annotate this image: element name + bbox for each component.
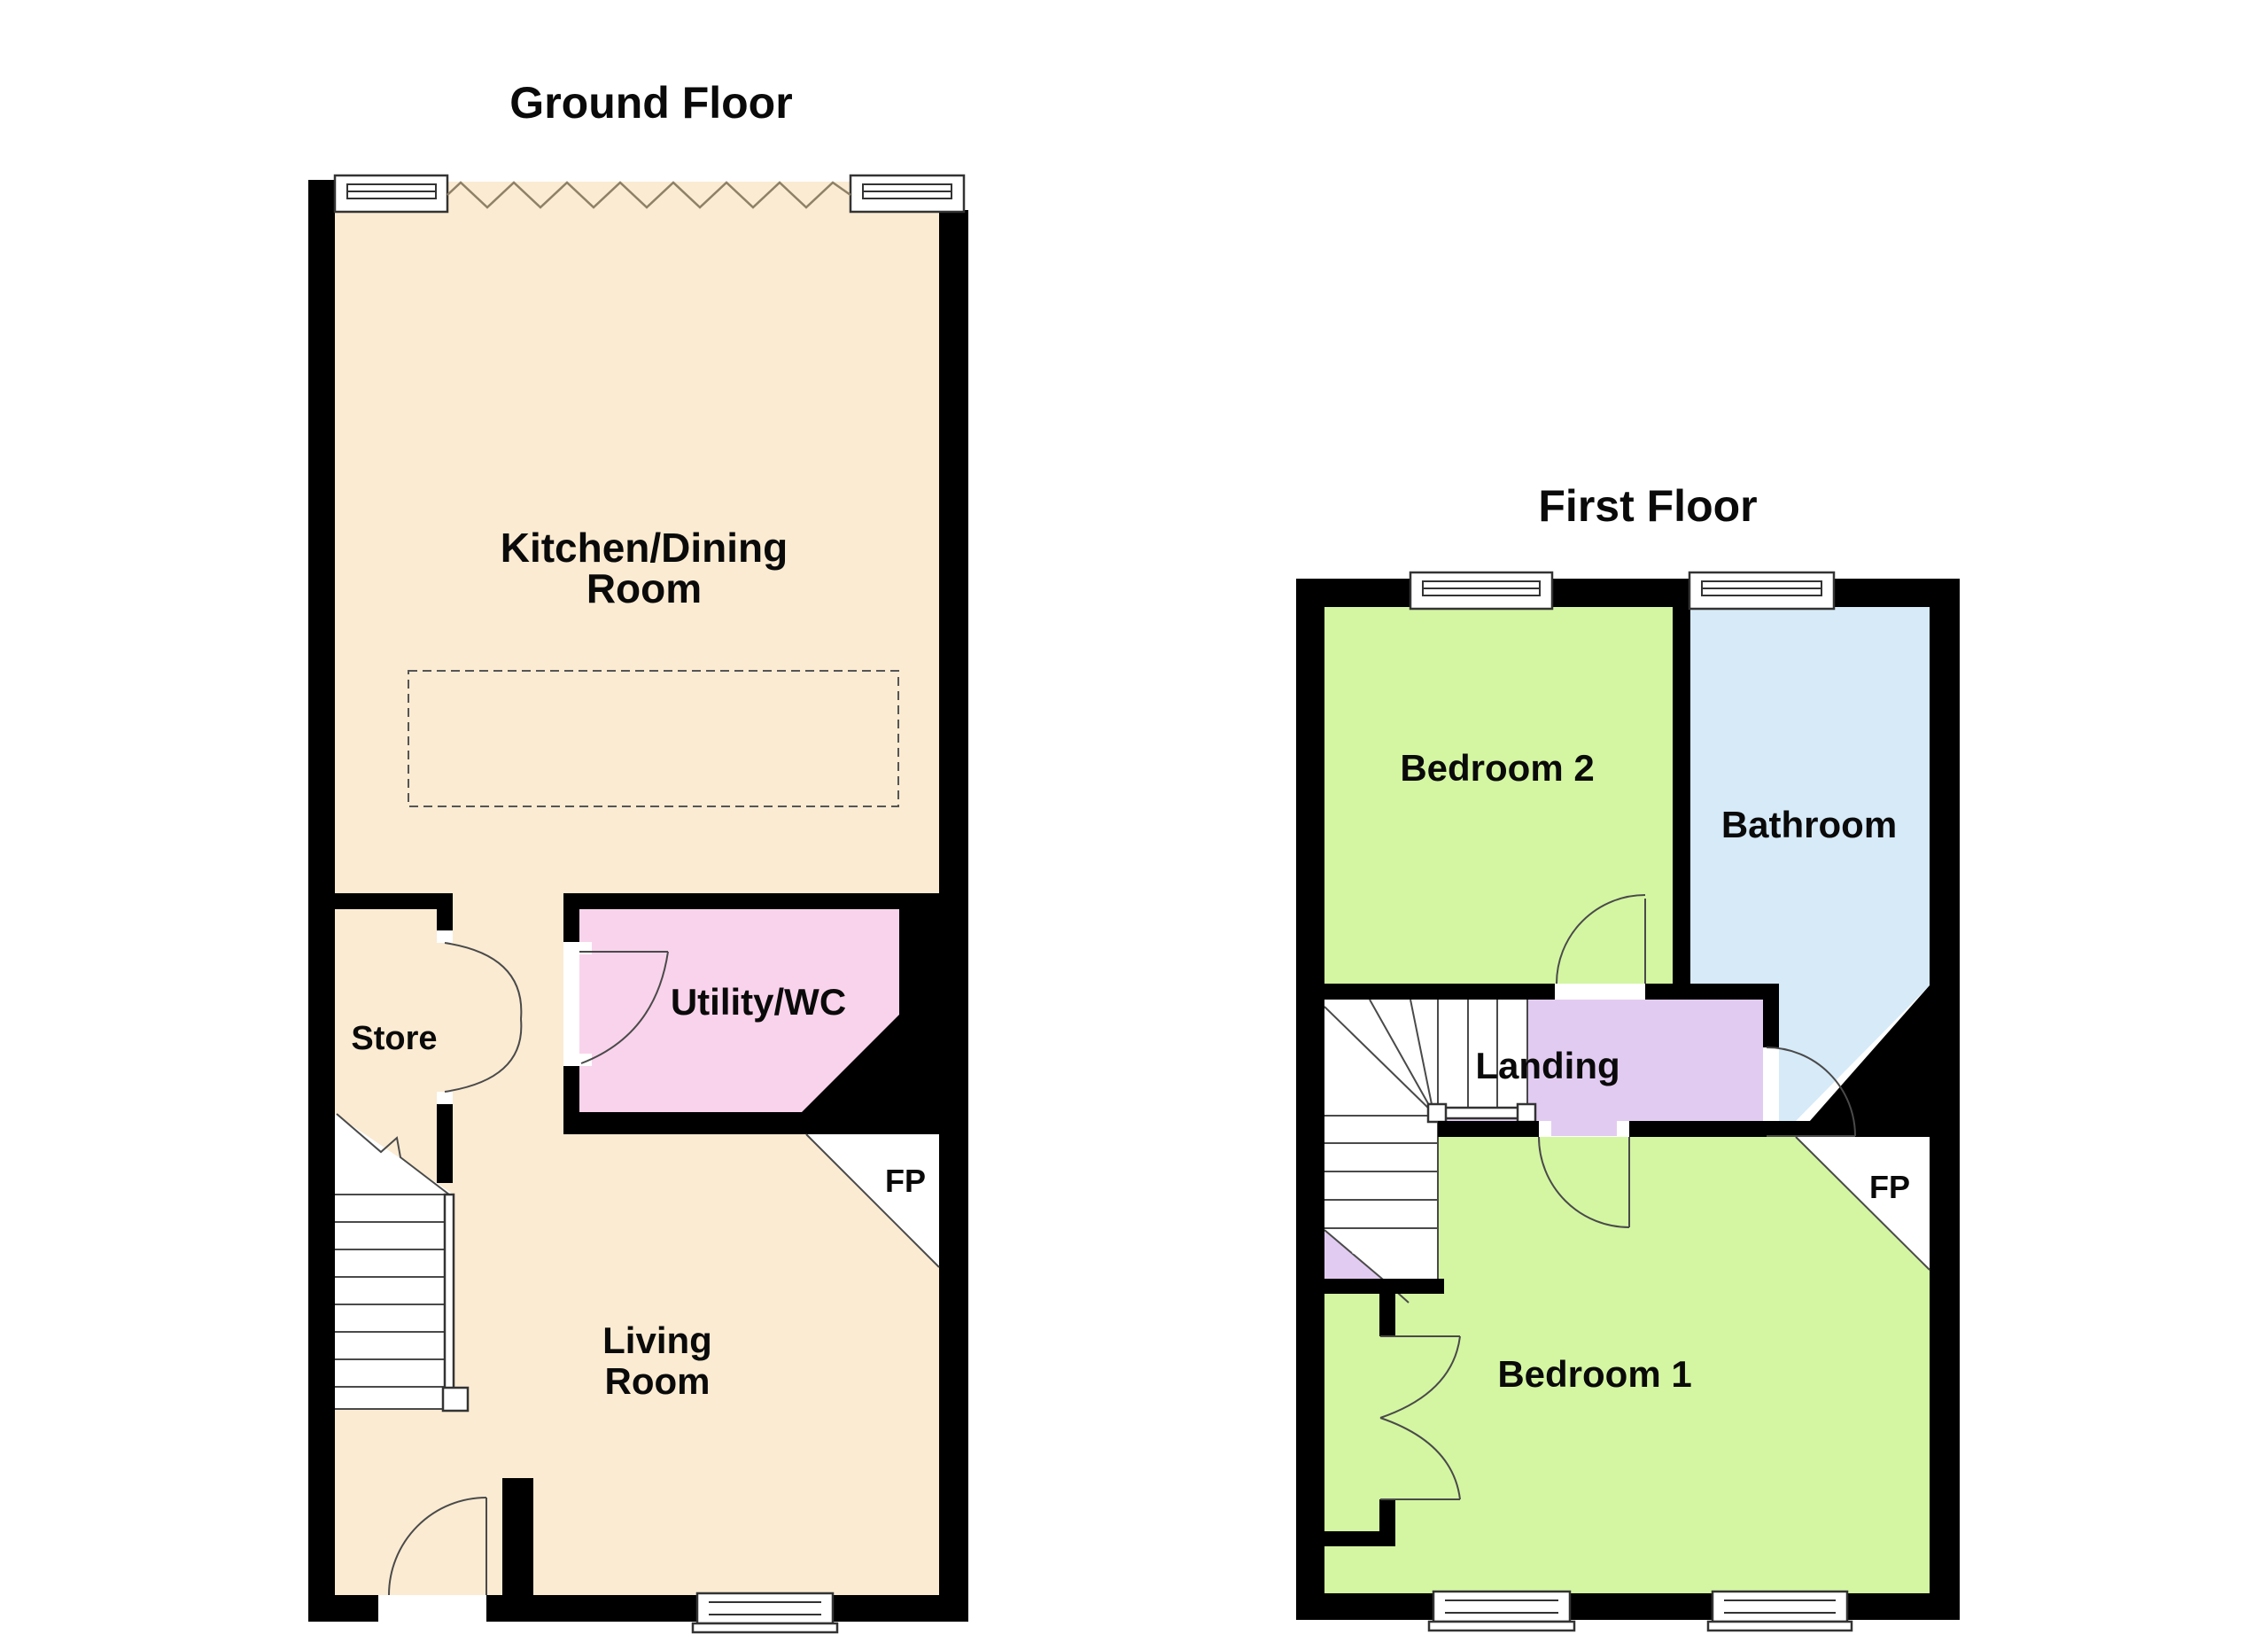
stair-newel xyxy=(1518,1104,1535,1122)
window xyxy=(1689,572,1834,609)
window xyxy=(697,1593,833,1623)
stair-handrail xyxy=(1438,1108,1526,1118)
stair-newel xyxy=(1428,1104,1446,1122)
window xyxy=(1410,572,1552,609)
stair-stringer xyxy=(445,1195,454,1409)
ground-wall-right xyxy=(939,210,968,1622)
first-wall-left xyxy=(1296,579,1324,1620)
stair-newel xyxy=(443,1388,468,1411)
window xyxy=(1713,1592,1847,1622)
kitchen-label-line2: Room xyxy=(586,565,702,611)
ground-fp-label: FP xyxy=(885,1163,926,1199)
first-floor-title: First Floor xyxy=(1538,481,1757,531)
window xyxy=(1433,1592,1570,1622)
kitchen-label-line1: Kitchen/Dining xyxy=(501,525,788,571)
living-label-line1: Living xyxy=(602,1319,712,1361)
first-wall-bottom xyxy=(1296,1593,1960,1620)
first-fp-label: FP xyxy=(1869,1169,1910,1205)
first-floor-plan: First Floor xyxy=(1296,481,1960,1631)
ground-floor-plan: Ground Floor xyxy=(308,78,968,1632)
bathroom-label: Bathroom xyxy=(1721,804,1897,845)
living-label-line2: Room xyxy=(605,1360,711,1402)
window xyxy=(850,175,964,212)
landing-label: Landing xyxy=(1475,1045,1619,1086)
store-label: Store xyxy=(351,1020,437,1057)
first-wall-top xyxy=(1296,579,1960,607)
living-wall-stub xyxy=(502,1478,533,1595)
window xyxy=(335,175,447,212)
ground-wall-left xyxy=(308,180,335,1622)
bedroom2-floor xyxy=(1324,607,1673,984)
first-wall-right xyxy=(1930,579,1960,1620)
bedroom2-label: Bedroom 2 xyxy=(1400,747,1594,789)
ground-floor-title: Ground Floor xyxy=(509,78,792,128)
utility-label: Utility/WC xyxy=(671,981,846,1023)
floor-plan-canvas: Ground Floor xyxy=(0,0,2268,1650)
ground-bottom-window xyxy=(693,1593,837,1632)
bedroom1-label: Bedroom 1 xyxy=(1497,1353,1691,1395)
